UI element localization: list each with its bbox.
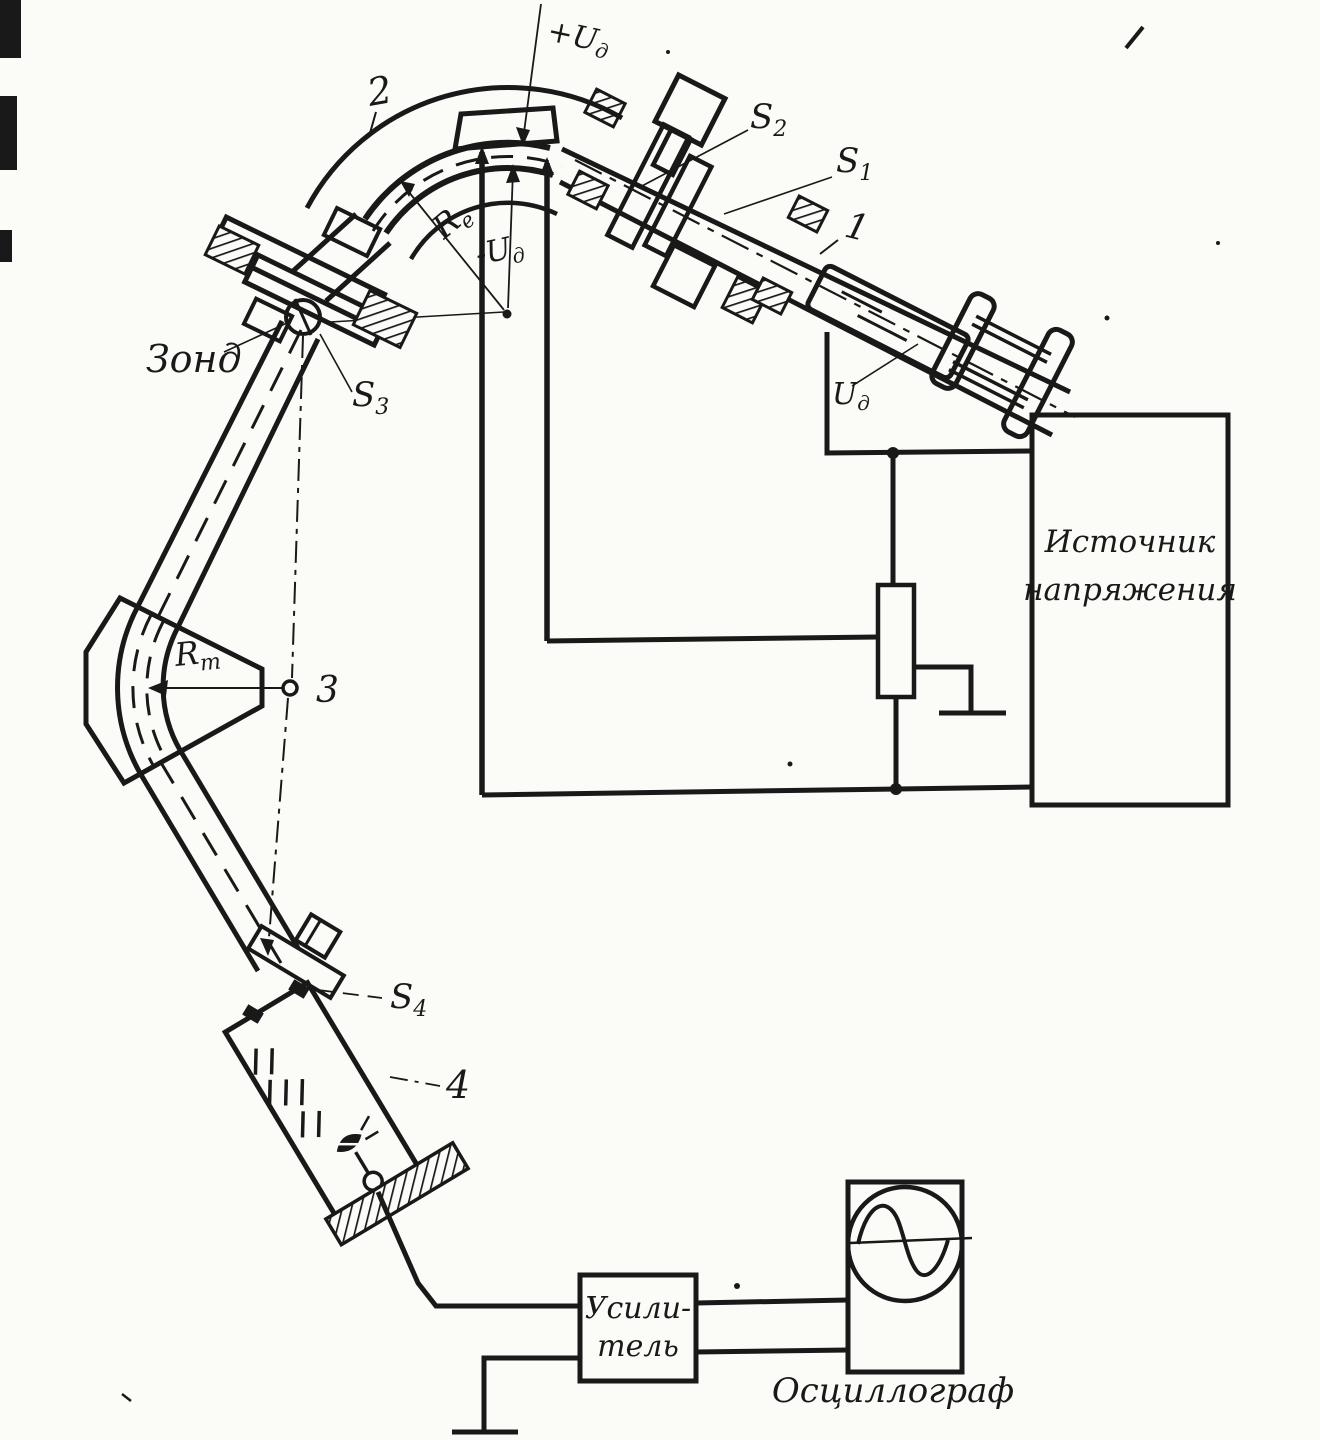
label-2: 2 bbox=[363, 67, 395, 115]
wire-detector-to-amp bbox=[378, 1192, 580, 1306]
text-labels: +Uд 2 S2 S1 1 Re -Uд Uд Зонд S3 Rm 3 S4 … bbox=[146, 14, 1237, 1411]
label-plus-ud: +Uд bbox=[544, 14, 614, 64]
feedthrough-cap bbox=[455, 108, 557, 149]
flange-s2 bbox=[607, 75, 767, 323]
amplifier-label-2: тель bbox=[597, 1329, 679, 1364]
wire-inner-plate-tap bbox=[547, 637, 878, 641]
resistor-divider bbox=[878, 585, 914, 697]
diagram-canvas: +Uд 2 S2 S1 1 Re -Uд Uд Зонд S3 Rm 3 S4 … bbox=[0, 0, 1320, 1440]
detector-section bbox=[217, 914, 580, 1306]
label-ud-gun: Uд bbox=[832, 377, 870, 415]
label-1: 1 bbox=[841, 205, 873, 250]
label-s1: S1 bbox=[836, 141, 873, 186]
eye-icon bbox=[332, 1129, 365, 1157]
magnet-center-point bbox=[283, 681, 297, 695]
voltage-source-label-2: напряжения bbox=[1023, 572, 1237, 608]
voltage-source-label-1: Источник bbox=[1044, 524, 1216, 560]
label-s4: S4 bbox=[390, 977, 427, 1022]
label-3: 3 bbox=[316, 670, 339, 711]
arc-center-dot bbox=[503, 310, 512, 319]
flange-bolts bbox=[568, 89, 828, 314]
flange-s3-probe bbox=[205, 208, 416, 347]
junction-dot bbox=[887, 447, 899, 459]
magnet-section bbox=[86, 321, 318, 971]
oscilloscope-label: Осциллограф bbox=[772, 1371, 1014, 1411]
analyzer-annotations bbox=[330, 4, 541, 322]
label-s2: S2 bbox=[750, 97, 787, 142]
wire-bottom-return bbox=[482, 787, 1032, 795]
label-4: 4 bbox=[445, 1063, 470, 1107]
label-probe: Зонд bbox=[146, 337, 242, 381]
label-pointers bbox=[224, 130, 918, 392]
scanned-page: +Uд 2 S2 S1 1 Re -Uд Uд Зонд S3 Rm 3 S4 … bbox=[0, 0, 1320, 1440]
voltage-source-box bbox=[1032, 415, 1228, 805]
label-re: Re bbox=[424, 194, 480, 250]
amplifier-label-1: Усили- bbox=[585, 1291, 691, 1326]
label-rm: Rm bbox=[172, 631, 222, 679]
beam-tube-1 bbox=[560, 75, 1075, 440]
magnet-pole-wedge bbox=[86, 598, 262, 783]
oscilloscope-box bbox=[848, 1182, 962, 1372]
multiplier-box bbox=[217, 961, 468, 1245]
deflector-plate-outer bbox=[365, 143, 550, 219]
junction-dot bbox=[890, 783, 902, 795]
label-s3: S3 bbox=[352, 375, 389, 420]
wiring bbox=[482, 332, 1032, 795]
